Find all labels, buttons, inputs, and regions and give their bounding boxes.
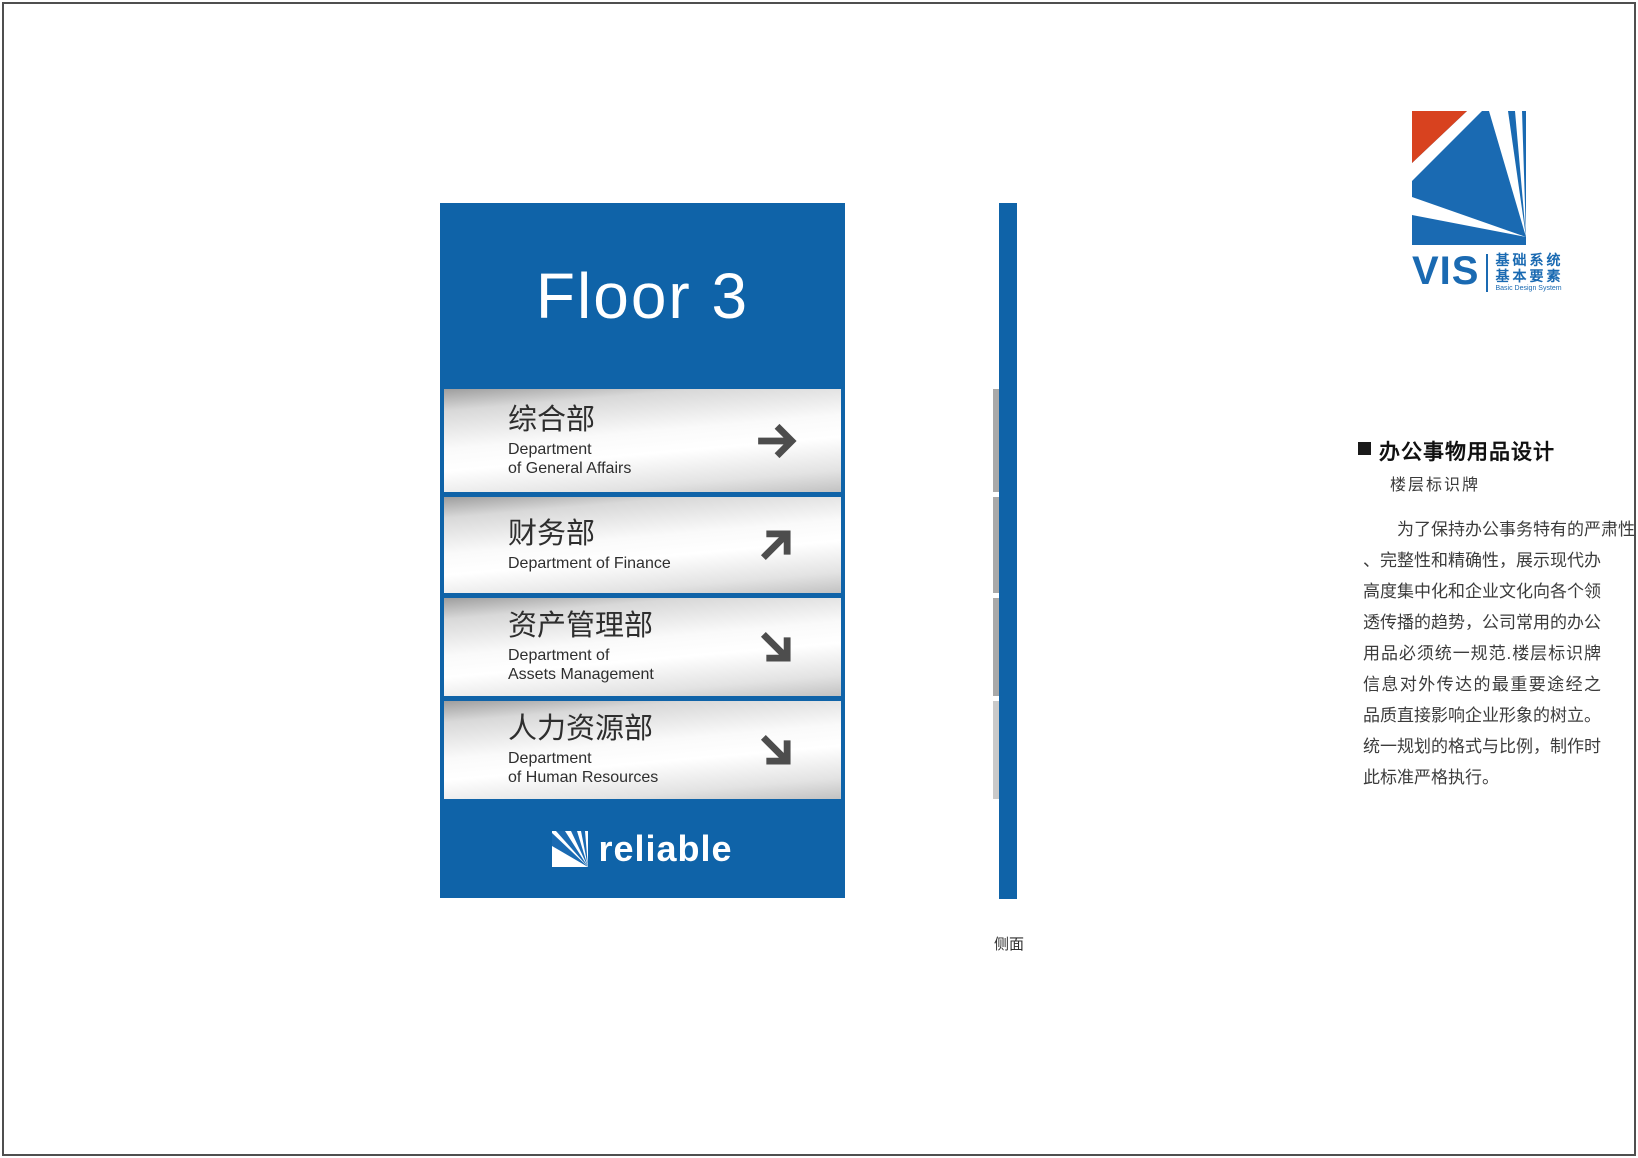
reliable-wordmark: reliable [598, 828, 732, 870]
side-view-plate [993, 598, 999, 696]
sign-header: Floor 3 [440, 203, 845, 389]
sign-footer: reliable [440, 799, 845, 898]
department-row-assets-management: 资产管理部 Department of Assets Management [444, 598, 841, 696]
paragraph-line: 品质直接影响企业形象的树立。采用 [1363, 700, 1601, 731]
vis-divider [1486, 254, 1488, 292]
department-rows: 综合部 Department of General Affairs 财务部 De… [444, 389, 841, 799]
arrow-right-icon [755, 420, 797, 462]
dept-en-line: of General Affairs [508, 459, 841, 478]
vi-manual-page: Floor 3 综合部 Department of General Affair… [0, 0, 1638, 1158]
reliable-logo-icon [552, 831, 588, 867]
floor-title: Floor 3 [536, 259, 749, 333]
department-row-human-resources: 人力资源部 Department of Human Resources [444, 701, 841, 799]
paragraph-line: 此标准严格执行。 [1363, 762, 1601, 793]
department-row-general-affairs: 综合部 Department of General Affairs [444, 389, 841, 492]
department-row-finance: 财务部 Department of Finance [444, 497, 841, 593]
body-paragraph: 为了保持办公事务特有的严肃性 、完整性和精确性，展示现代办公的 高度集中化和企业… [1363, 514, 1601, 793]
side-view-bar [999, 203, 1017, 899]
vis-tagline-en: Basic Design System [1495, 285, 1563, 292]
vis-wordmark: VIS [1412, 252, 1479, 292]
paragraph-line: 高度集中化和企业文化向各个领域渗 [1363, 576, 1601, 607]
dept-en-line: Assets Management [508, 665, 841, 684]
section-subtitle: 楼层标识牌 [1390, 471, 1480, 495]
side-view-plate [993, 497, 999, 593]
section-bullet [1358, 442, 1371, 455]
dept-en-line: of Human Resources [508, 768, 841, 787]
vis-logo-text: VIS 基础系统 基本要素 Basic Design System [1412, 252, 1563, 292]
side-view-plate [993, 389, 999, 492]
paragraph-line: 、完整性和精确性，展示现代办公的 [1363, 545, 1601, 576]
vis-tagline-line: 基本要素 [1495, 268, 1563, 284]
paragraph-line: 为了保持办公事务特有的严肃性 [1363, 514, 1601, 545]
side-view-label: 侧面 [975, 933, 1043, 954]
side-view-plate [993, 701, 999, 799]
vis-tagline-line: 基础系统 [1495, 252, 1563, 268]
paragraph-line: 透传播的趋势，公司常用的办公事务 [1363, 607, 1601, 638]
vis-logo-icon [1412, 111, 1526, 245]
vis-tagline: 基础系统 基本要素 Basic Design System [1495, 252, 1563, 292]
paragraph-line: 信息对外传达的最重要途经之一，其 [1363, 669, 1601, 700]
paragraph-line: 用品必须统一规范.楼层标识牌是企业 [1363, 638, 1601, 669]
paragraph-line: 统一规划的格式与比例，制作时请按 [1363, 731, 1601, 762]
section-title: 办公事物用品设计 [1379, 436, 1555, 466]
floor-sign-panel: Floor 3 综合部 Department of General Affair… [440, 203, 845, 898]
